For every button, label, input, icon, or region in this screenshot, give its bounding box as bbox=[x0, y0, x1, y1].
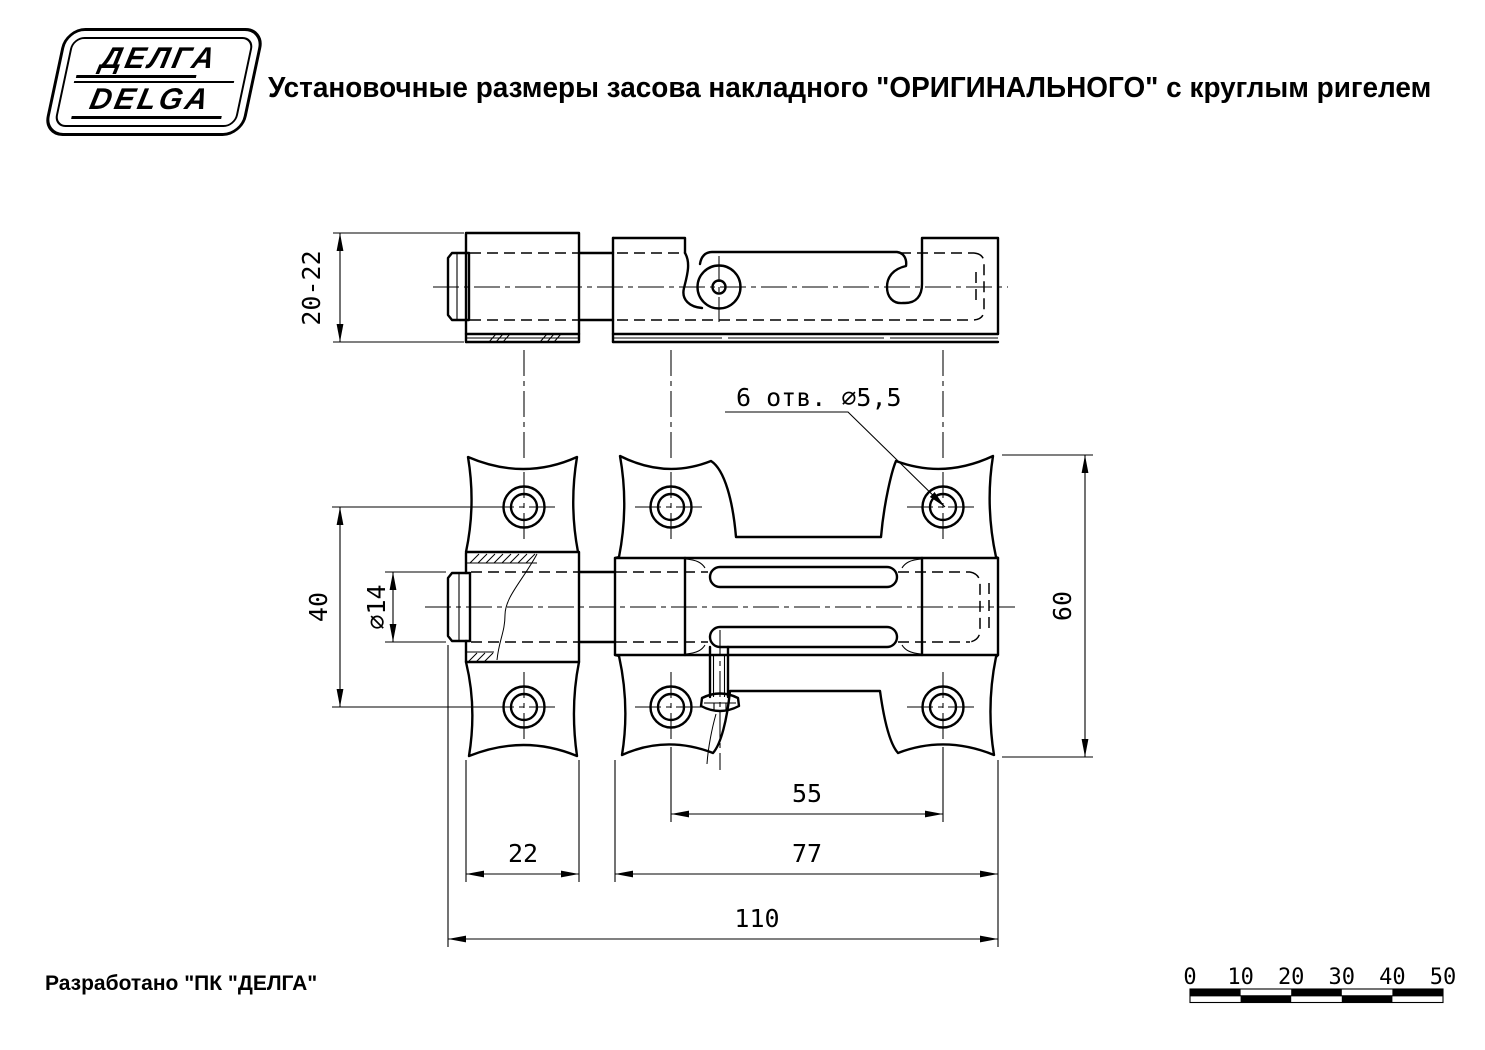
dim-vertical-hole-spacing: 40 bbox=[304, 592, 333, 622]
holes-note: 6 отв. ∅5,5 bbox=[736, 383, 902, 412]
front-view bbox=[425, 456, 1015, 770]
dim-keeper-width: 22 bbox=[508, 839, 538, 868]
scale-label-50: 50 bbox=[1430, 965, 1457, 990]
dim-horizontal-hole-spacing: 55 bbox=[792, 779, 822, 808]
section-hatching bbox=[468, 554, 535, 662]
dim-overall-length: 110 bbox=[734, 904, 779, 933]
scale-label-10: 10 bbox=[1227, 965, 1254, 990]
dimensions: 20-22 40 ∅14 60 55 bbox=[297, 233, 1093, 947]
dim-height-range: 20-22 bbox=[297, 250, 326, 325]
main-plate bbox=[615, 456, 998, 755]
scale-label-40: 40 bbox=[1379, 965, 1406, 990]
scale-bar: 0 10 20 30 40 50 bbox=[1183, 965, 1456, 1003]
scale-label-30: 30 bbox=[1329, 965, 1356, 990]
holes-note-leader: 6 отв. ∅5,5 bbox=[725, 383, 945, 507]
scale-label-0: 0 bbox=[1183, 965, 1196, 990]
dim-plate-height: 60 bbox=[1048, 591, 1077, 621]
dim-plate-width: 77 bbox=[792, 839, 822, 868]
dim-bolt-diameter: ∅14 bbox=[362, 584, 391, 629]
drawing-sheet: ДЕЛГА DELGA Установочные размеры засова … bbox=[0, 0, 1485, 1050]
top-view bbox=[433, 233, 1008, 462]
scale-label-20: 20 bbox=[1278, 965, 1305, 990]
technical-drawing: 20-22 40 ∅14 60 55 bbox=[0, 0, 1485, 1050]
